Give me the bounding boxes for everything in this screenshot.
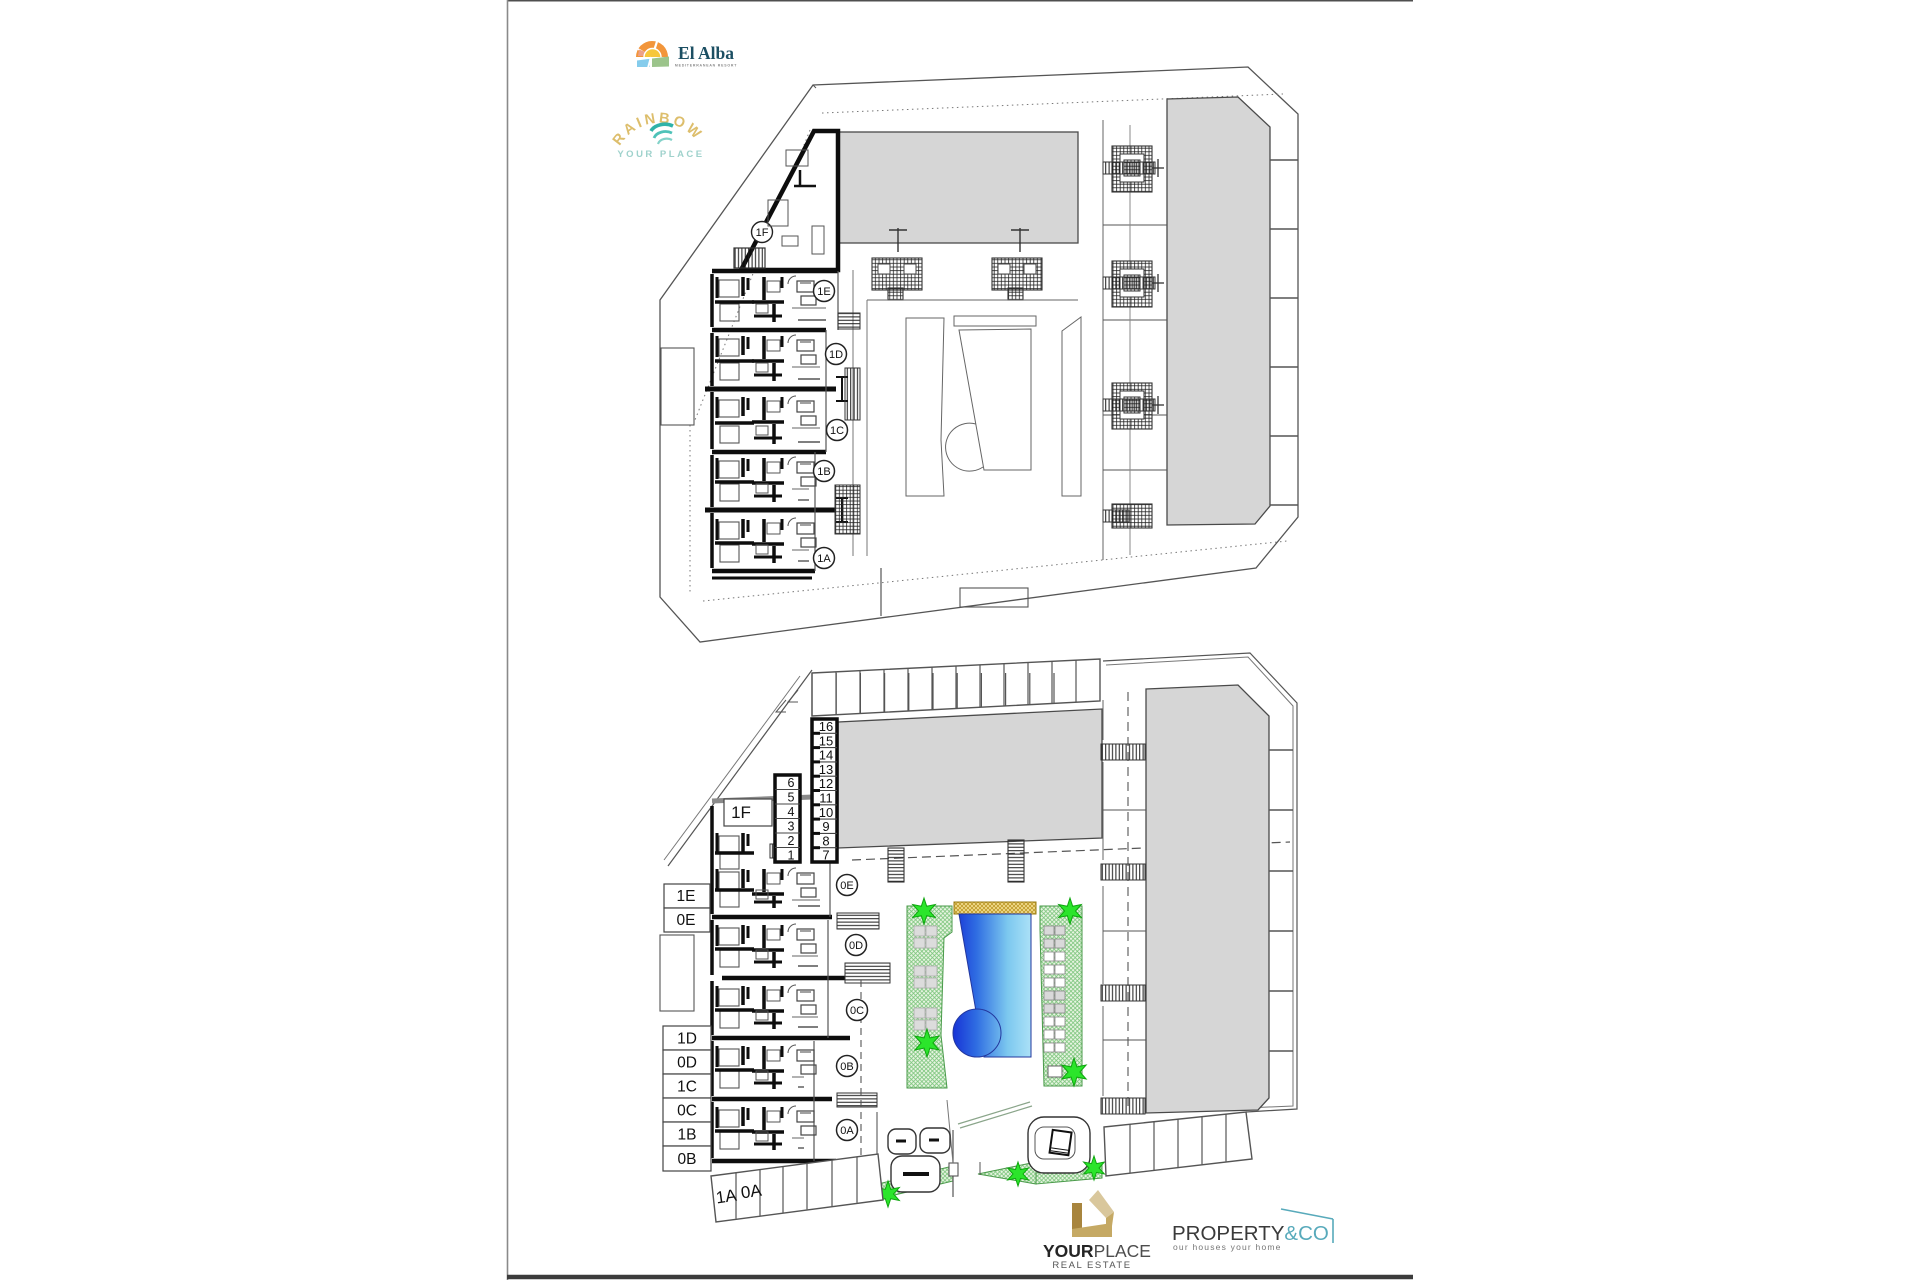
- svg-text:1B: 1B: [817, 466, 830, 478]
- svg-text:0C: 0C: [850, 1005, 864, 1017]
- svg-text:11: 11: [819, 791, 833, 806]
- svg-text:14: 14: [819, 748, 833, 763]
- svg-text:1F: 1F: [731, 803, 751, 822]
- svg-text:1A: 1A: [715, 1186, 739, 1208]
- svg-text:8: 8: [822, 833, 829, 848]
- svg-text:our houses your home: our houses your home: [1173, 1242, 1282, 1252]
- svg-text:3: 3: [788, 820, 795, 834]
- svg-text:2: 2: [788, 834, 795, 848]
- svg-text:0A: 0A: [840, 1125, 854, 1137]
- svg-text:1C: 1C: [677, 1079, 697, 1096]
- svg-text:0E: 0E: [840, 880, 853, 892]
- svg-text:0C: 0C: [677, 1103, 697, 1120]
- svg-text:1E: 1E: [677, 888, 696, 905]
- svg-text:YOUR PLACE: YOUR PLACE: [617, 149, 704, 160]
- svg-text:10: 10: [819, 805, 833, 820]
- svg-text:1: 1: [788, 849, 795, 863]
- svg-text:7: 7: [822, 848, 829, 863]
- svg-text:1E: 1E: [817, 286, 830, 298]
- svg-text:6: 6: [788, 776, 795, 790]
- svg-text:0E: 0E: [677, 912, 696, 929]
- svg-text:13: 13: [819, 762, 833, 777]
- svg-text:12: 12: [819, 776, 833, 791]
- svg-text:1B: 1B: [678, 1127, 697, 1144]
- svg-text:1F: 1F: [756, 227, 769, 239]
- svg-text:1C: 1C: [830, 425, 844, 437]
- svg-text:El Alba: El Alba: [678, 43, 734, 63]
- svg-text:YOURPLACE: YOURPLACE: [1043, 1241, 1151, 1261]
- svg-text:MEDITERRANEAN RESORT: MEDITERRANEAN RESORT: [675, 64, 737, 68]
- svg-text:9: 9: [822, 819, 829, 834]
- svg-text:4: 4: [788, 805, 795, 819]
- svg-text:16: 16: [819, 719, 833, 734]
- svg-text:1D: 1D: [829, 349, 843, 361]
- svg-text:REAL ESTATE: REAL ESTATE: [1052, 1260, 1131, 1271]
- svg-text:0D: 0D: [677, 1055, 697, 1072]
- svg-text:1D: 1D: [677, 1031, 697, 1048]
- svg-text:0B: 0B: [840, 1061, 853, 1073]
- svg-text:5: 5: [788, 791, 795, 805]
- svg-text:1A: 1A: [817, 553, 831, 565]
- svg-text:0A: 0A: [740, 1181, 764, 1203]
- svg-text:0B: 0B: [678, 1151, 697, 1168]
- svg-text:0D: 0D: [849, 940, 863, 952]
- svg-text:15: 15: [819, 733, 833, 748]
